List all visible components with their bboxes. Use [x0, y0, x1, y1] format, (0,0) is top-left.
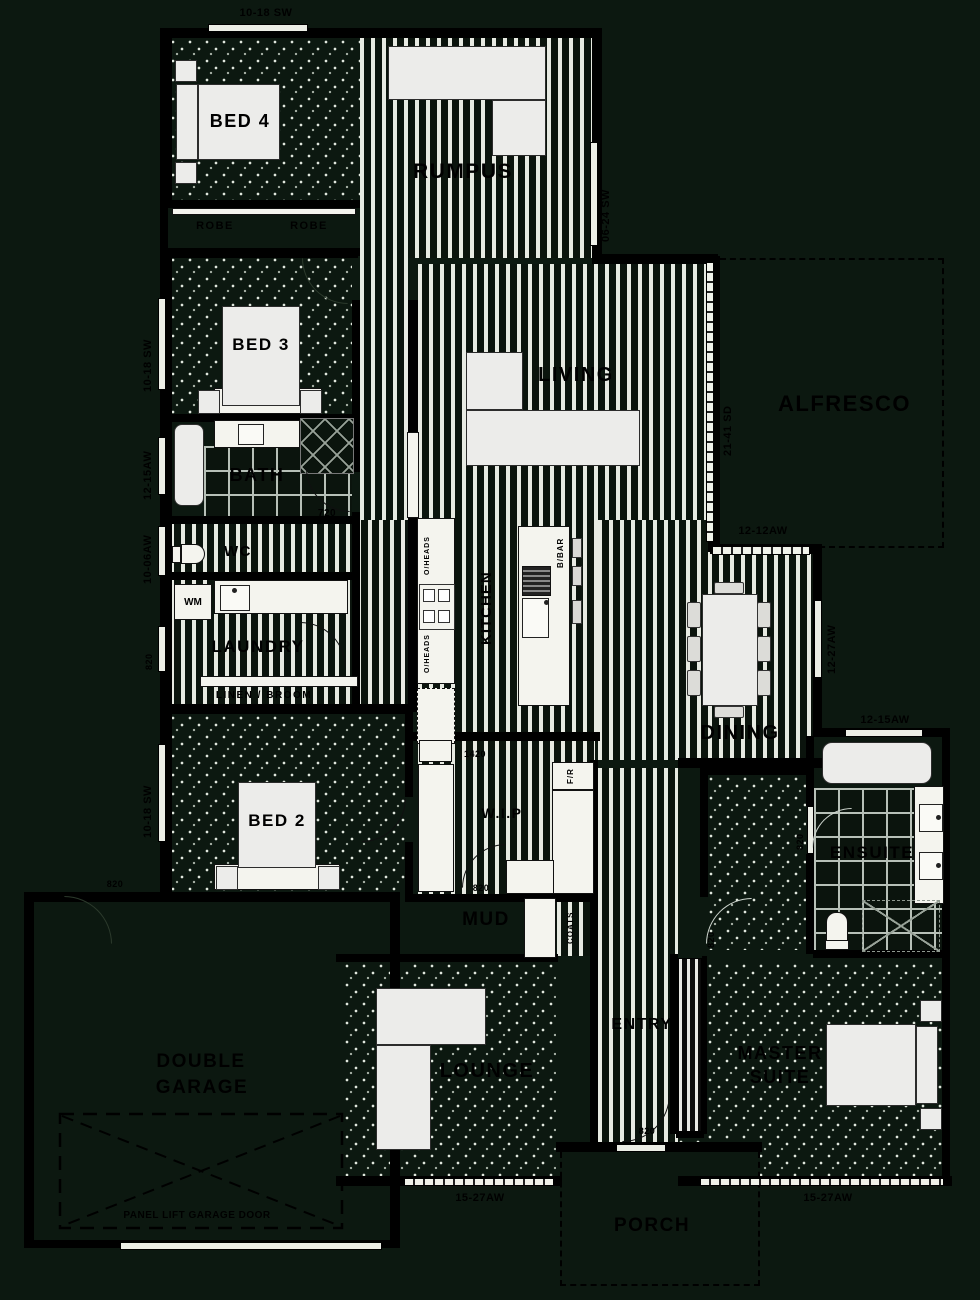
living-floor — [418, 264, 710, 520]
wc-toilet-tank — [172, 546, 181, 563]
bath-label: BATH — [224, 466, 290, 486]
bed2-label: BED 2 — [240, 812, 314, 831]
dining-window — [814, 600, 822, 678]
wall — [700, 775, 708, 897]
ensuite-shower — [862, 900, 940, 952]
mud-bench — [524, 898, 556, 958]
master-bed — [826, 1024, 916, 1106]
linen-shelf — [200, 676, 358, 687]
rumpus-sofa-chaise — [492, 100, 546, 156]
robe-right-label: ROBE — [284, 220, 334, 232]
ensuite-toilet-tank — [825, 940, 849, 950]
wall — [405, 842, 413, 902]
ensuite-window — [845, 729, 923, 737]
wall — [592, 254, 718, 264]
dining-chair — [687, 670, 701, 696]
dining-window-dim: 12-27AW — [826, 604, 838, 674]
dining-table — [702, 594, 758, 706]
wip-label: W.I.P — [470, 806, 534, 821]
master-window — [700, 1178, 944, 1186]
bed3-window — [158, 298, 166, 390]
wall — [160, 248, 358, 258]
bedside-table — [175, 162, 197, 184]
wall — [670, 954, 678, 1134]
garage-door-label: PANEL LIFT GARAGE DOOR — [112, 1210, 282, 1221]
mud-label: MUD — [452, 910, 520, 931]
bedside-table — [300, 390, 322, 414]
laundry-door-dim: 820 — [144, 630, 154, 670]
wc-window — [158, 526, 166, 576]
oheads-lower-label: O/HEADS — [424, 628, 431, 680]
master-robe — [678, 958, 702, 1132]
alfresco-window — [712, 546, 810, 555]
alfresco-stacker-door — [706, 262, 714, 542]
garage-door-panel — [120, 1242, 382, 1250]
floor-plan: BED 4 ROBE ROBE RUMPUS BED 3 BATH 720 WC… — [0, 0, 980, 1300]
ensuite-window-dim: 12-15AW — [852, 714, 918, 726]
hall-shelf — [407, 432, 419, 518]
island-appliance — [522, 566, 551, 596]
bbar-label: B/BAR — [556, 532, 565, 574]
bath-window-dim: 12-15AW — [142, 434, 154, 500]
bed3-bed — [222, 306, 300, 406]
lounge-window — [404, 1178, 554, 1186]
oheads-upper-label: O/HEADS — [424, 530, 431, 582]
dining-chair — [687, 636, 701, 662]
rumpus-sofa — [388, 46, 546, 100]
bed4-label: BED 4 — [202, 112, 278, 132]
wall — [806, 854, 814, 954]
bedside-table — [198, 390, 220, 414]
bed4-window — [208, 24, 308, 32]
bedside-table — [175, 60, 197, 82]
living-label: LIVING — [526, 364, 626, 386]
dining-chair — [714, 582, 744, 594]
wc-window-dim: 10-06AW — [142, 518, 154, 584]
bedside-table — [920, 1108, 942, 1130]
bed4-window-dim: 10-18 SW — [218, 7, 314, 19]
dining-chair — [687, 602, 701, 628]
wall — [405, 712, 413, 797]
rumpus-window — [590, 142, 598, 246]
kitchen-label: KITCHEN — [478, 556, 495, 660]
entry-door-dim: 820 — [630, 1126, 664, 1136]
ensuite-tap — [936, 863, 941, 868]
ensuite-bathtub — [822, 742, 932, 784]
stool — [572, 566, 582, 586]
washing-machine-label: WM — [184, 597, 202, 608]
robe-slider — [172, 208, 356, 215]
ensuite-door-dim: 820 — [795, 810, 805, 850]
dining-chair — [714, 706, 744, 718]
wc-toilet-bowl — [181, 544, 205, 564]
bedside-table — [216, 866, 238, 890]
kitchen-pantry-bench — [417, 688, 455, 744]
bath-window — [158, 437, 166, 495]
bed2-window — [158, 744, 166, 842]
laundry-label: LAUNDRY — [204, 638, 312, 657]
living-armchair — [466, 352, 523, 410]
entry-label: ENTRY — [604, 1016, 680, 1034]
dining-chair — [757, 670, 771, 696]
rumpus-window-dim: 06-24 SW — [600, 150, 612, 242]
ensuite-toilet-bowl — [826, 912, 848, 942]
ensuite-tap — [936, 815, 941, 820]
wall — [160, 704, 412, 714]
garage-label-line1: DOUBLE — [146, 1052, 256, 1073]
stool — [572, 538, 582, 558]
wip-bench-top — [419, 740, 452, 762]
laundry-tap — [232, 588, 237, 593]
stool — [572, 600, 582, 624]
bed3-window-dim: 10-18 SW — [142, 300, 154, 392]
living-sofa — [466, 410, 640, 466]
bath-shower — [300, 418, 354, 474]
fridge-label: F/R — [566, 764, 575, 788]
wall — [24, 892, 34, 1248]
robe-left-label: ROBE — [190, 220, 240, 232]
alfresco-stacker-dim: 21-41 SD — [722, 384, 734, 456]
bathtub — [174, 424, 204, 506]
bedside-table — [318, 866, 340, 890]
laundry-door-opening — [158, 626, 166, 672]
bedside-table — [920, 1000, 942, 1022]
island-tap — [544, 600, 549, 605]
bed2-window-dim: 10-18 SW — [142, 746, 154, 838]
master-label-line2: SUITE — [742, 1068, 818, 1088]
entry-door-opening — [616, 1144, 666, 1152]
wip-bench-dim: 1420 — [456, 749, 494, 759]
coats-label: COATS — [566, 904, 575, 952]
garage-entry-door-dim: 820 — [98, 879, 132, 889]
wall — [405, 894, 598, 902]
lounge-sofa-top — [376, 988, 486, 1045]
master-headboard — [916, 1026, 938, 1104]
lounge-label: LOUNGE — [430, 1060, 544, 1082]
rumpus-label: RUMPUS — [406, 160, 520, 183]
wall — [678, 758, 822, 768]
bed-headboard — [176, 84, 198, 160]
master-window-dim: 15-27AW — [794, 1192, 862, 1204]
washing-machine: WM — [174, 584, 212, 620]
lounge-sofa-side — [376, 1045, 431, 1150]
wip-bench-left — [418, 764, 454, 892]
alfresco-label: ALFRESCO — [778, 392, 902, 416]
linen-label: LINEN / BROOM — [208, 690, 320, 701]
dining-chair — [757, 636, 771, 662]
bed3-label: BED 3 — [226, 336, 296, 355]
bath-sink — [238, 424, 264, 445]
wip-bench-corner — [506, 860, 554, 894]
master-label-line1: MASTER — [732, 1044, 828, 1064]
wip-bench-right — [552, 790, 594, 894]
lounge-window-dim: 15-27AW — [446, 1192, 514, 1204]
wall — [168, 572, 352, 580]
cooktop — [419, 584, 455, 630]
dining-label: DINING — [694, 722, 786, 744]
porch-label: PORCH — [602, 1216, 702, 1237]
wall — [702, 956, 707, 1134]
garage-label-line2: GARAGE — [146, 1078, 258, 1099]
wc-label: WC — [218, 544, 258, 561]
entry-floor — [598, 768, 678, 1142]
corridor-floor — [360, 258, 408, 520]
alfresco-window-dim: 12-12AW — [730, 525, 796, 537]
dining-chair — [757, 602, 771, 628]
